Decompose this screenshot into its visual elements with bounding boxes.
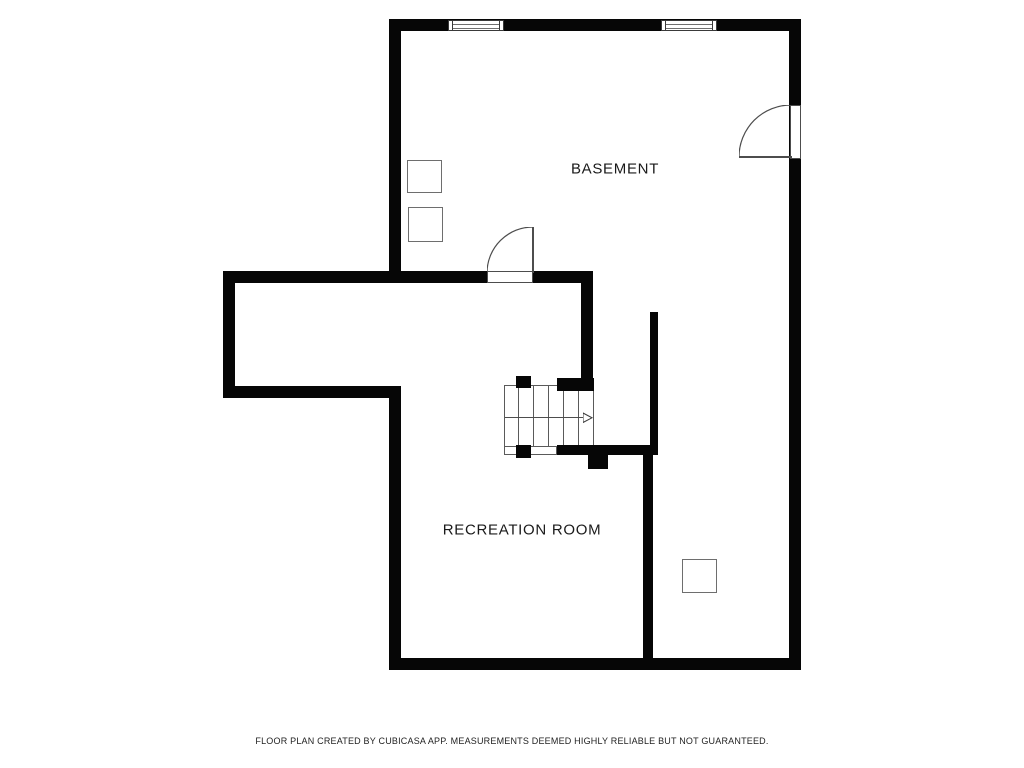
fixture-square-basement-1 [407, 160, 442, 193]
stair-tread [548, 386, 549, 450]
wall-left-upper [389, 19, 401, 283]
window-cap [499, 21, 500, 30]
window-pane [666, 24, 712, 29]
stair-tread [533, 386, 534, 450]
wall-bottom [389, 658, 801, 670]
room-label-recreation-room: RECREATION ROOM [443, 522, 602, 539]
wall-hallway-left [223, 271, 235, 398]
wall-partition [650, 312, 658, 453]
stair-tread [563, 386, 564, 450]
window-cap [712, 21, 713, 30]
footer-disclaimer: FLOOR PLAN CREATED BY CUBICASA APP. MEAS… [0, 736, 1024, 746]
wall-stub-block [588, 445, 608, 469]
wall-recreation-right [643, 445, 653, 658]
wall-stairs-top-segment [557, 378, 594, 391]
door-hallway-swing-icon [487, 227, 534, 274]
stair-post-top [516, 376, 531, 388]
wall-left-lower [389, 386, 401, 670]
window-top-right-icon [661, 20, 717, 31]
stair-tread [578, 386, 579, 450]
fixture-square-recreation [682, 559, 717, 593]
stair-direction-line [505, 417, 585, 418]
window-pane [453, 24, 499, 29]
wall-stairwell-right [581, 271, 593, 391]
wall-hallway-bottom [223, 386, 401, 398]
stair-post-bottom [516, 445, 531, 458]
stair-direction-arrow-icon [583, 412, 595, 424]
window-top-left-icon [448, 20, 504, 31]
wall-hallway-top [223, 271, 593, 283]
floor-plan: BASEMENT RECREATION ROOM FLOOR PLAN CREA… [0, 0, 1024, 768]
room-label-basement: BASEMENT [571, 161, 659, 178]
door-basement-right-swing-icon [739, 105, 792, 158]
stair-tread [518, 386, 519, 450]
fixture-square-basement-2 [408, 207, 443, 242]
